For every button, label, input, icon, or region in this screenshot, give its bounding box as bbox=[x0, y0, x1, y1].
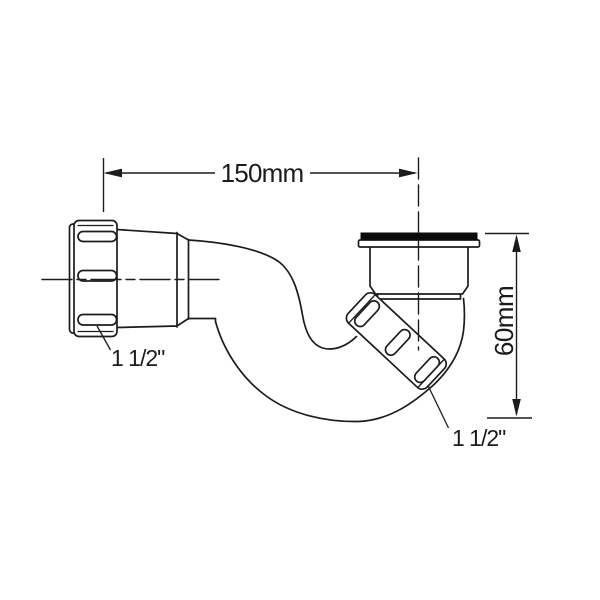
arrow-left bbox=[104, 169, 123, 178]
outlet-size-label: 1 1/2" bbox=[111, 345, 165, 371]
height-dimension-label: 60mm bbox=[489, 286, 519, 356]
arrow-right bbox=[399, 169, 418, 178]
grip-slot bbox=[78, 315, 117, 326]
callout-leader-right bbox=[428, 386, 449, 429]
arrow-up bbox=[512, 235, 521, 253]
arrow-down bbox=[512, 399, 521, 417]
angled-nut bbox=[344, 290, 450, 392]
dimension-arrows bbox=[104, 169, 521, 417]
inlet-size-label: 1 1/2" bbox=[452, 425, 506, 451]
dimension-lines bbox=[97, 158, 532, 428]
outlet-nut bbox=[70, 221, 118, 337]
outlet-cone bbox=[117, 230, 189, 328]
p-trap-technical-drawing: 150mm 60mm 1 1/2" 1 1/2" bbox=[0, 0, 600, 600]
width-dimension-label: 150mm bbox=[221, 158, 304, 188]
grip-slot bbox=[78, 232, 117, 242]
dimension-labels: 150mm 60mm 1 1/2" 1 1/2" bbox=[111, 158, 519, 451]
drawing-canvas: 150mm 60mm 1 1/2" 1 1/2" bbox=[0, 0, 600, 600]
trap-body bbox=[42, 158, 480, 422]
pipe-top-curve bbox=[189, 240, 357, 349]
